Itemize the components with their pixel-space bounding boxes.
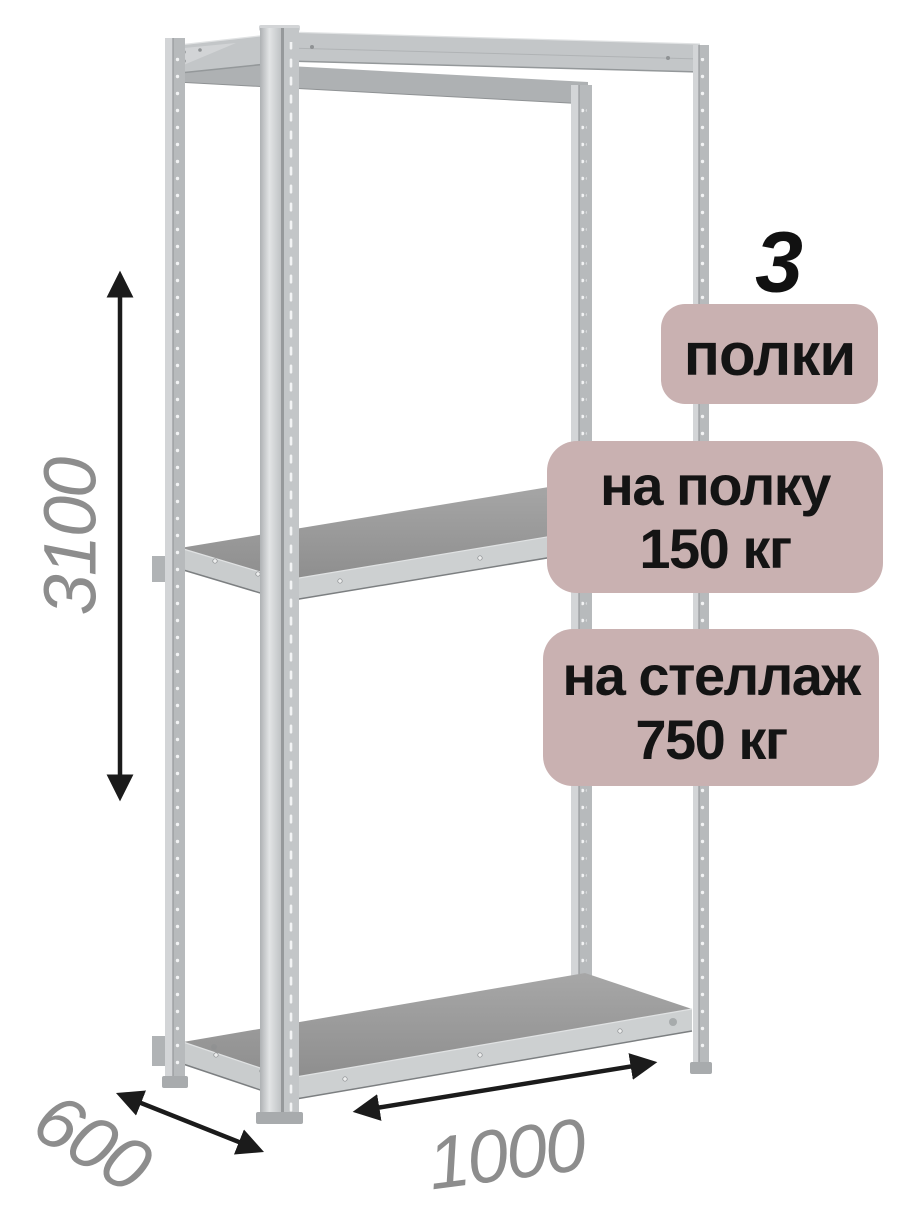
badge-shelf-load: на полку 150 кг [547,441,883,593]
rack-post-back-left [162,38,188,1088]
post-foot [690,1062,712,1074]
post-foot [162,1076,188,1088]
badge-shelf-load-line1: на полку [600,454,830,517]
rack-illustration [0,0,900,1200]
badge-shelf-load-line2: 150 кг [639,517,790,580]
shelf-bottom [152,973,692,1100]
rack-post-front-left [256,25,303,1124]
product-diagram: 3100 600 1000 3 полки на полку 150 кг на… [0,0,900,1200]
badge-rack-load: на стеллаж 750 кг [543,629,879,786]
shelf-count-number: 3 [755,214,803,313]
badge-shelf-count-label: полки [684,320,855,389]
badge-shelf-count: полки [661,304,878,404]
post-foot [256,1112,303,1124]
badge-rack-load-line2: 750 кг [635,708,786,771]
product-image-canvas: { "annotations": { "shelf_count": { "val… [0,0,900,1200]
badge-rack-load-line1: на стеллаж [562,644,859,707]
height-dimension-label: 3100 [28,459,113,616]
rack-top-front-beam [286,32,700,72]
